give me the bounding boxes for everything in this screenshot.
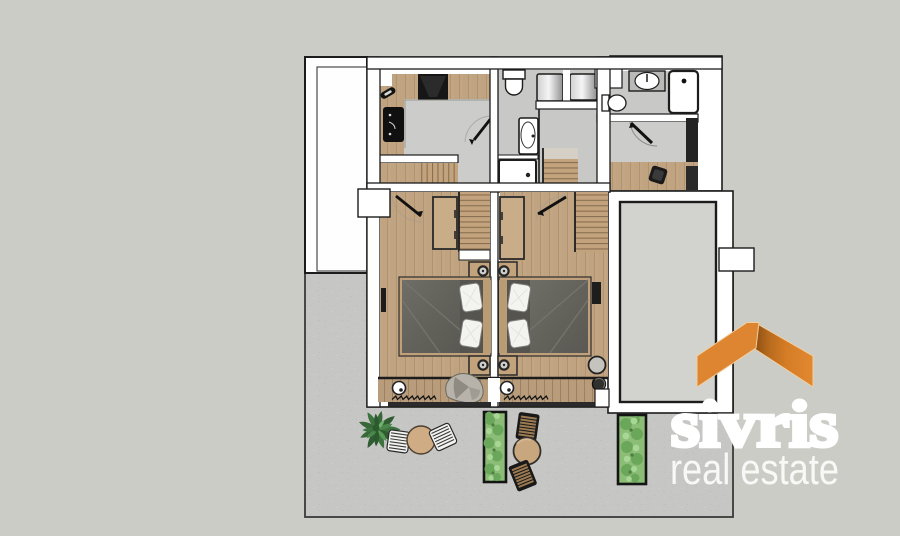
svg-text:real estate: real estate <box>670 445 839 494</box>
